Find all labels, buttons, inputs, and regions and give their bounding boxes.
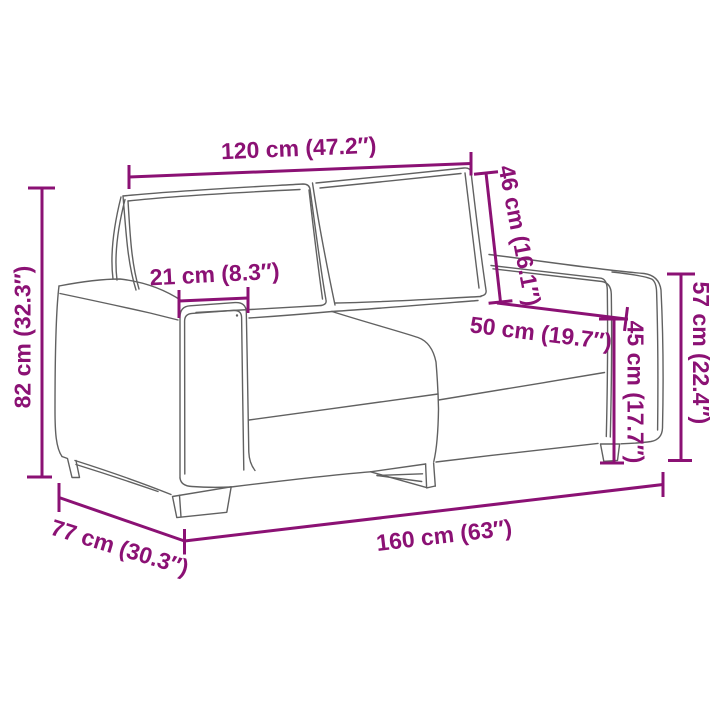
svg-text:160 cm (63″): 160 cm (63″) (375, 514, 513, 556)
svg-text:21 cm (8.3″): 21 cm (8.3″) (149, 258, 280, 291)
svg-text:46 cm (16.1″): 46 cm (16.1″) (493, 163, 546, 308)
svg-text:77 cm (30.3″): 77 cm (30.3″) (48, 514, 192, 581)
svg-text:82 cm (32.3″): 82 cm (32.3″) (10, 266, 36, 409)
svg-text:120 cm (47.2″): 120 cm (47.2″) (220, 132, 376, 164)
svg-text:57 cm (22.4″): 57 cm (22.4″) (688, 281, 714, 424)
svg-text:50 cm (19.7″): 50 cm (19.7″) (469, 311, 614, 354)
svg-text:45 cm (17.7″): 45 cm (17.7″) (623, 321, 649, 464)
